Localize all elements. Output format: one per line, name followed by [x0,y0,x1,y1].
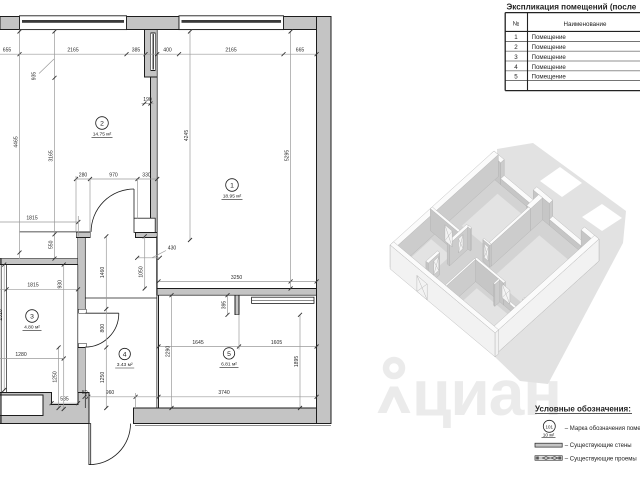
svg-text:400: 400 [163,48,172,54]
svg-text:№: № [513,20,520,27]
svg-text:550: 550 [48,240,54,249]
svg-text:655: 655 [3,48,12,54]
svg-text:970: 970 [109,172,118,178]
svg-text:2165: 2165 [225,48,236,54]
svg-text:4.80 м²: 4.80 м² [24,325,40,331]
svg-text:2290: 2290 [165,346,171,357]
svg-text:1250: 1250 [100,372,106,383]
svg-text:1: 1 [230,182,234,189]
svg-text:1460: 1460 [100,267,106,278]
svg-text:2: 2 [514,44,518,51]
svg-text:1645: 1645 [192,340,203,346]
svg-text:18.95 м²: 18.95 м² [223,194,242,200]
svg-text:Помещение: Помещение [532,34,567,41]
svg-text:930: 930 [58,280,64,289]
svg-text:Помещение: Помещение [532,44,567,51]
svg-text:6.81 м²: 6.81 м² [221,361,237,367]
svg-text:3: 3 [30,313,34,320]
svg-text:14.75 м²: 14.75 м² [93,132,112,138]
svg-text:800: 800 [100,324,106,333]
svg-text:4245: 4245 [184,130,190,141]
svg-text:5: 5 [227,351,231,358]
svg-text:101: 101 [546,424,554,429]
svg-text:1250: 1250 [52,371,58,382]
svg-text:5295: 5295 [284,150,290,161]
svg-text:280: 280 [79,172,88,178]
svg-text:– Марка обозначения помещений: – Марка обозначения помещений [565,425,640,432]
svg-text:3.43 м²: 3.43 м² [117,362,133,368]
svg-text:– Существующие стены: – Существующие стены [565,443,632,449]
svg-text:1: 1 [514,34,518,41]
svg-text:4465: 4465 [13,136,19,147]
svg-text:190: 190 [143,97,152,103]
svg-text:2: 2 [100,120,104,127]
svg-text:Помещение: Помещение [532,64,567,71]
svg-text:2510: 2510 [0,309,4,320]
svg-text:395: 395 [221,301,227,310]
svg-text:3: 3 [514,54,518,61]
svg-text:4: 4 [123,351,127,358]
svg-text:385: 385 [132,48,141,54]
svg-text:3165: 3165 [48,150,54,161]
svg-text:4: 4 [514,64,518,71]
svg-text:Помещение: Помещение [532,74,567,81]
svg-text:2165: 2165 [67,48,78,54]
svg-text:665: 665 [296,48,305,54]
svg-text:Наименование: Наименование [564,21,607,28]
svg-text:960: 960 [106,390,115,396]
svg-text:1280: 1280 [15,352,26,358]
svg-text:430: 430 [168,246,177,252]
svg-text:1050: 1050 [139,266,145,277]
svg-text:1895: 1895 [294,356,300,367]
svg-text:1605: 1605 [271,340,282,346]
svg-text:1815: 1815 [26,215,37,221]
svg-text:– Существующие проемы: – Существующие проемы [565,457,637,463]
svg-text:935: 935 [32,72,38,81]
svg-text:Помещение: Помещение [532,54,567,61]
svg-text:50: 50 [82,390,88,396]
svg-text:330: 330 [142,172,151,178]
svg-text:3250: 3250 [231,275,242,281]
svg-text:Условные обозначения:: Условные обозначения: [535,404,631,413]
svg-text:Экспликация помещений (после: Экспликация помещений (после [507,2,637,11]
svg-text:1815: 1815 [27,283,38,289]
svg-text:5: 5 [514,74,518,81]
svg-text:3740: 3740 [218,390,229,396]
svg-text:535: 535 [60,397,69,403]
